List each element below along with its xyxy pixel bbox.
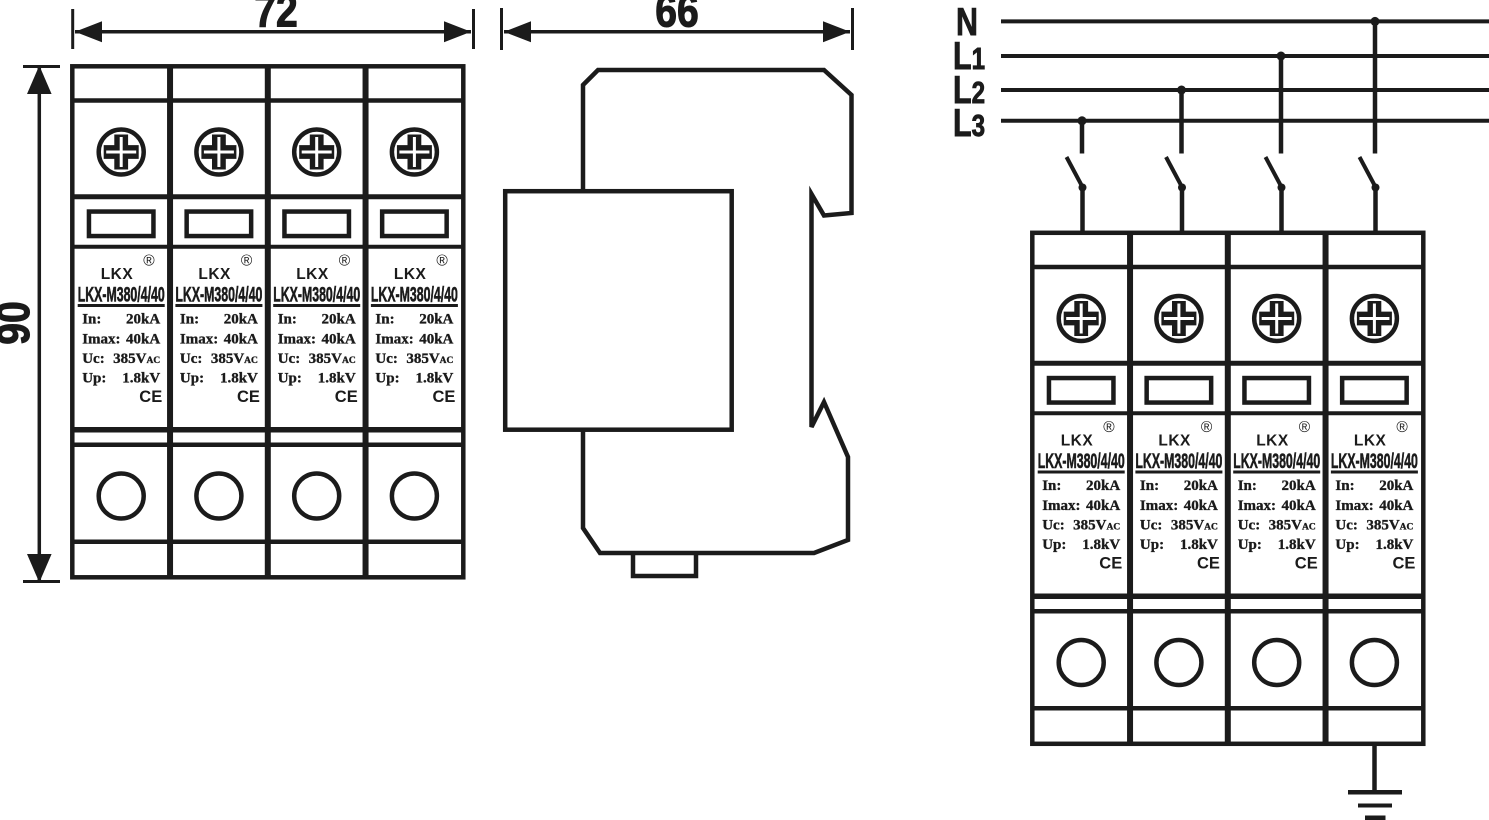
svg-text:L3: L3 [953,101,985,144]
svg-text:90: 90 [0,301,40,344]
svg-text:72: 72 [254,0,297,37]
svg-text:66: 66 [655,0,698,37]
